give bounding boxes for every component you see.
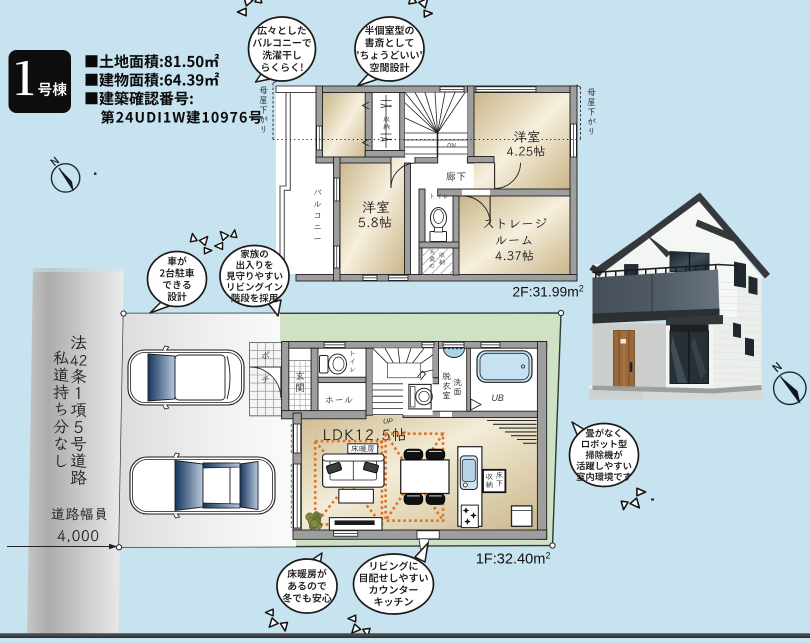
svg-text:UP: UP [383,419,393,426]
svg-text:UB: UB [492,393,504,403]
svg-text:2F:31.99m2: 2F:31.99m2 [512,284,583,300]
svg-text:DN: DN [447,144,456,150]
svg-text:1F:32.40m2: 1F:32.40m2 [476,551,551,568]
